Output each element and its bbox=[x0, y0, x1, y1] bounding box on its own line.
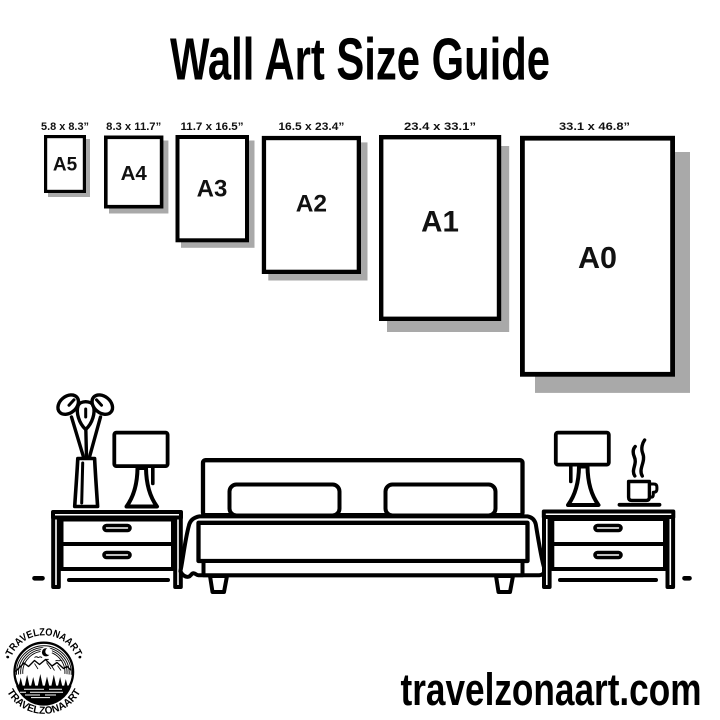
svg-text:A5: A5 bbox=[53, 155, 78, 176]
svg-text:A2: A2 bbox=[296, 190, 327, 217]
svg-text:A0: A0 bbox=[578, 241, 617, 275]
svg-text:11.7 x 16.5”: 11.7 x 16.5” bbox=[181, 121, 244, 133]
svg-text:travelzonaart.com: travelzonaart.com bbox=[401, 664, 702, 715]
svg-text:8.3 x 11.7”: 8.3 x 11.7” bbox=[106, 121, 161, 133]
svg-text:A3: A3 bbox=[197, 176, 228, 203]
svg-text:33.1 x 46.8”: 33.1 x 46.8” bbox=[559, 121, 630, 133]
svg-text:16.5 x 23.4”: 16.5 x 23.4” bbox=[278, 121, 344, 133]
svg-text:A1: A1 bbox=[421, 206, 459, 239]
svg-text:5.8 x 8.3”: 5.8 x 8.3” bbox=[41, 121, 89, 133]
svg-text:•TRAVELZONAART•: •TRAVELZONAART• bbox=[0, 0, 84, 717]
svg-text:A4: A4 bbox=[121, 162, 148, 185]
svg-text:23.4 x 33.1”: 23.4 x 33.1” bbox=[404, 121, 476, 133]
svg-text:Wall Art Size Guide: Wall Art Size Guide bbox=[170, 27, 550, 93]
